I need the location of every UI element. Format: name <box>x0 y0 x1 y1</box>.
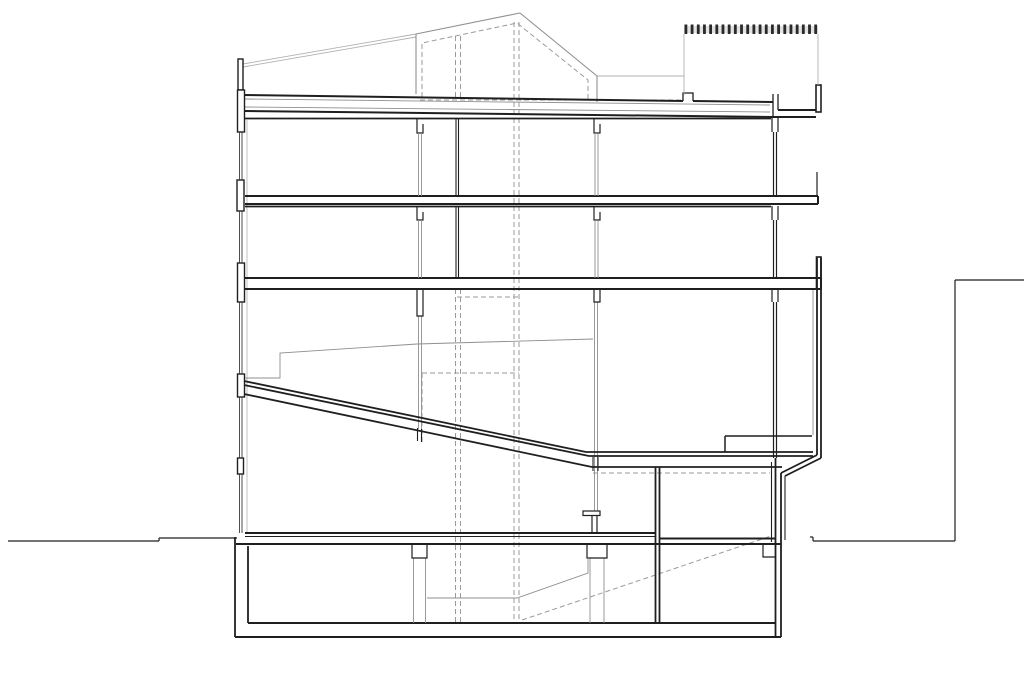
ceiling-head-lines <box>245 119 771 207</box>
terrain-ground-lines <box>8 280 1024 541</box>
interior-partitions-solid <box>456 119 459 278</box>
building-section-drawing <box>0 0 1024 682</box>
ramp <box>244 381 813 467</box>
basement-stair-projection <box>427 558 588 598</box>
roof-railing-hatch <box>684 25 818 35</box>
lower-walls-inner <box>772 462 786 542</box>
railing-posts <box>684 34 818 95</box>
hall-hanging-stubs <box>417 289 600 316</box>
column-tee-detail <box>583 511 600 533</box>
lower-walls <box>656 258 822 637</box>
basement-beams <box>412 544 775 558</box>
hall-projection-rail <box>245 290 813 435</box>
skylight-hidden-outline <box>422 23 588 100</box>
architectural-section-page <box>0 0 1024 682</box>
roof-inner-projection <box>245 99 770 112</box>
floor-slabs <box>235 196 821 637</box>
facade-mullion-blocks <box>237 59 245 474</box>
skylight-projection-light <box>243 34 684 76</box>
skylight-monitor-outline <box>416 13 597 102</box>
bench-step <box>725 436 812 452</box>
roof-slab <box>243 95 816 117</box>
basement-envelope <box>235 537 248 637</box>
